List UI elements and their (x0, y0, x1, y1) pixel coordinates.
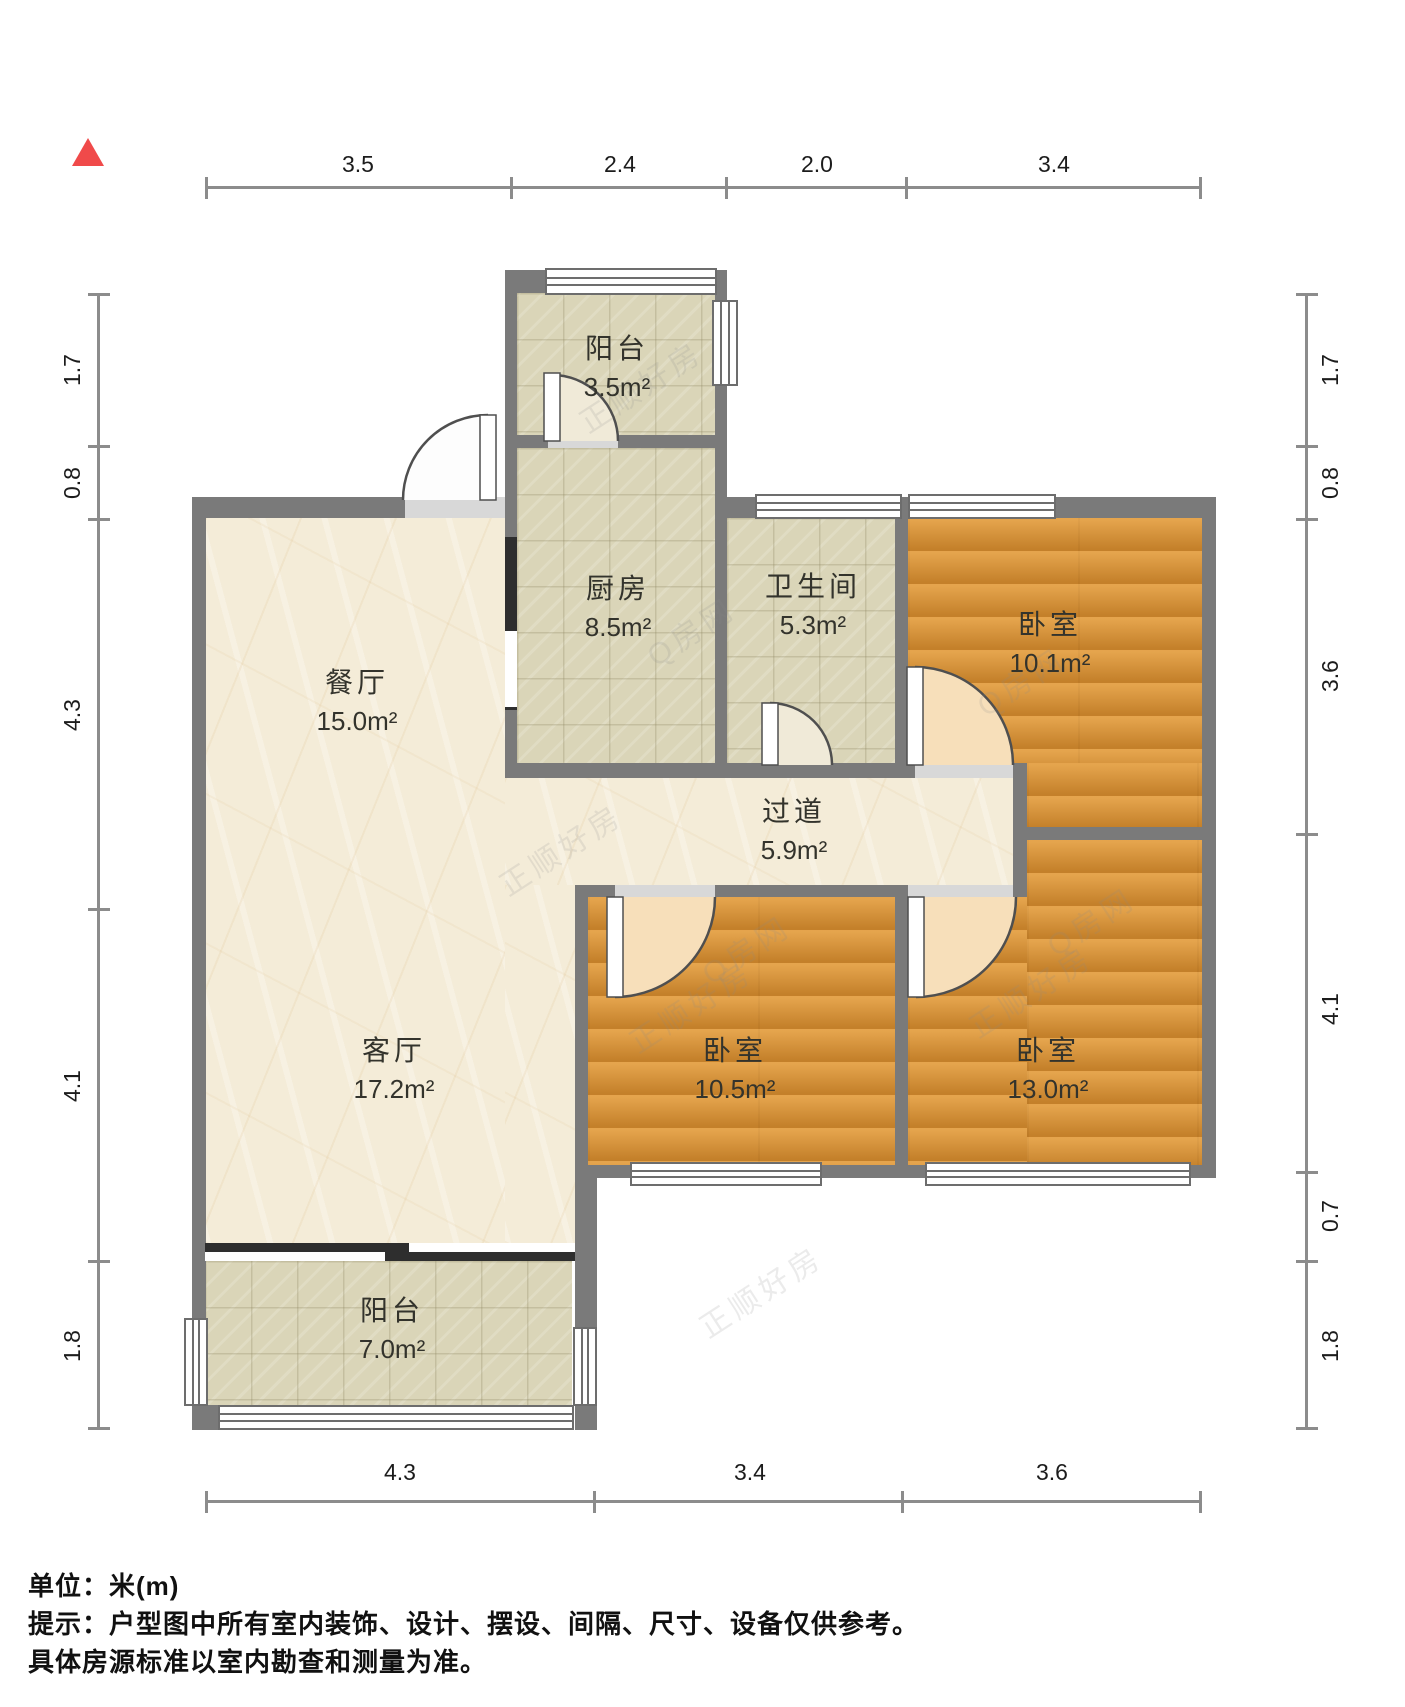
dim-label-right-1: 1.7 (1316, 335, 1344, 405)
watermark: 正顺好房 (689, 1233, 830, 1346)
room-name: 卧室 (703, 1029, 767, 1069)
sliding-door-track-right (409, 1243, 575, 1252)
dim-tick (1296, 1171, 1318, 1174)
window-bedroom-middle-bottom (630, 1162, 822, 1186)
threshold-bedroom-right-door (908, 885, 1013, 897)
dim-tick (88, 293, 110, 296)
dim-line-top (205, 186, 1202, 189)
dim-tick (88, 518, 110, 521)
room-area: 17.2m² (354, 1074, 435, 1105)
room-area: 5.9m² (761, 835, 827, 866)
sliding-door-panel-right (409, 1252, 575, 1261)
dim-tick (1296, 1260, 1318, 1263)
wall-bathroom-bedroom-divider (895, 518, 908, 763)
room-label-balcony-top: 阳台 3.5m² (584, 327, 650, 403)
dim-tick (510, 177, 513, 199)
dim-label-right-3: 3.6 (1316, 641, 1344, 711)
window-bedroom-top-right (908, 494, 1056, 519)
window-bathroom-top (755, 494, 902, 519)
dim-label-top-3: 2.0 (782, 150, 852, 178)
room-label-bedroom-top-right: 卧室 10.1m² (1010, 603, 1091, 679)
entrance-door-swing (403, 415, 488, 500)
threshold-bedroom-middle-door (615, 885, 715, 897)
wall-kitchen-left-upper (505, 448, 517, 537)
dim-tick (1199, 177, 1202, 199)
room-name: 卧室 (1018, 603, 1082, 643)
sliding-door-track-left (205, 1252, 385, 1261)
window-balcony-top-right (712, 300, 738, 386)
footer-unit-note: 单位：米(m) (28, 1566, 179, 1603)
dim-line-left (97, 293, 100, 1430)
dim-tick (88, 908, 110, 911)
room-area: 10.5m² (695, 1074, 776, 1105)
wall-balcony-kitchen-divider-left (505, 435, 548, 448)
threshold-entrance (405, 497, 505, 518)
wall-kitchen-left-lower (505, 710, 517, 763)
north-indicator-icon (72, 138, 104, 166)
wall-bedrooms-right-divider (1013, 827, 1216, 840)
wall-kitchen-dining-black-panel (505, 537, 517, 628)
floor-living-right-strip (505, 885, 575, 1243)
room-area: 3.5m² (584, 372, 650, 403)
wall-outer-left (192, 497, 206, 1430)
dim-label-top-1: 3.5 (323, 150, 393, 178)
room-label-kitchen: 厨房 8.5m² (585, 567, 651, 643)
room-label-balcony-bottom: 阳台 7.0m² (359, 1289, 425, 1365)
window-balcony-bottom-right (573, 1327, 597, 1406)
floor-bedroom-top-right-notch (1027, 763, 1202, 827)
dim-tick (901, 1491, 904, 1513)
sliding-door-panel-left (205, 1243, 385, 1252)
dim-label-bottom-1: 4.3 (365, 1458, 435, 1486)
footer-extra-note: 具体房源标准以室内勘查和测量为准。 (28, 1642, 487, 1679)
dim-label-right-5: 0.7 (1316, 1181, 1344, 1251)
room-label-bedroom-bottom-right: 卧室 13.0m² (1008, 1029, 1089, 1105)
threshold-bedroom-top-right-door (915, 763, 1013, 778)
footer-tip-note: 提示：户型图中所有室内装饰、设计、摆设、间隔、尺寸、设备仅供参考。 (28, 1604, 919, 1641)
window-balcony-bottom (218, 1405, 574, 1430)
room-area: 5.3m² (780, 610, 846, 641)
wall-hallway-bottom-middle (715, 885, 908, 897)
dim-label-bottom-3: 3.6 (1017, 1458, 1087, 1486)
dim-label-left-5: 1.8 (58, 1311, 86, 1381)
dim-tick (905, 177, 908, 199)
dim-label-left-3: 4.3 (58, 680, 86, 750)
dim-tick (205, 177, 208, 199)
dim-tick (88, 1260, 110, 1263)
room-label-hallway: 过道 5.9m² (761, 790, 827, 866)
room-label-bathroom: 卫生间 5.3m² (765, 565, 861, 641)
wall-living-bedroom-divider (575, 885, 588, 1165)
dim-label-right-4: 4.1 (1316, 974, 1344, 1044)
entrance-door-arc (403, 415, 488, 500)
wall-hallway-top (505, 763, 915, 778)
wall-dining-top (192, 497, 405, 518)
wall-living-right-corner (575, 1165, 597, 1327)
room-area: 8.5m² (585, 612, 651, 643)
dim-line-bottom (205, 1500, 1202, 1503)
opening-kitchen-dining-passage (505, 628, 517, 710)
dim-tick (1199, 1491, 1202, 1513)
threshold-balcony-top-door (548, 435, 618, 448)
wall-bedrooms-bottom-divider (895, 897, 908, 1165)
room-name: 餐厅 (325, 661, 389, 701)
window-balcony-top (545, 268, 717, 295)
room-name: 阳台 (585, 327, 649, 367)
wall-balcony-kitchen-divider-right (618, 435, 727, 448)
floor-plan-canvas: 阳台 3.5m² 厨房 8.5m² 卫生间 5.3m² 卧室 10.1m² 餐厅… (0, 0, 1405, 1707)
window-balcony-bottom-left (184, 1318, 208, 1406)
wall-balcony-bottom-left-corner (192, 1405, 218, 1430)
room-name: 过道 (762, 790, 826, 830)
dim-tick (88, 445, 110, 448)
room-area: 10.1m² (1010, 648, 1091, 679)
floor-dining-living (205, 518, 505, 1243)
dim-label-left-2: 0.8 (58, 448, 86, 518)
dim-tick (1296, 833, 1318, 836)
room-name: 厨房 (586, 567, 650, 607)
dim-label-left-1: 1.7 (58, 335, 86, 405)
dim-line-right (1305, 293, 1308, 1430)
dim-label-right-2: 0.8 (1316, 448, 1344, 518)
dim-tick (1296, 445, 1318, 448)
dim-tick (205, 1491, 208, 1513)
room-name: 卧室 (1016, 1029, 1080, 1069)
dim-tick (1296, 293, 1318, 296)
room-area: 15.0m² (317, 706, 398, 737)
window-bedroom-right-bottom (925, 1162, 1191, 1186)
room-label-bedroom-bottom-middle: 卧室 10.5m² (695, 1029, 776, 1105)
dim-label-top-2: 2.4 (585, 150, 655, 178)
sliding-door-overlap-block (385, 1243, 409, 1261)
room-name: 阳台 (360, 1289, 424, 1329)
wall-balcony-top-left (505, 270, 517, 448)
dim-label-left-4: 4.1 (58, 1051, 86, 1121)
room-area: 13.0m² (1008, 1074, 1089, 1105)
dim-label-bottom-2: 3.4 (715, 1458, 785, 1486)
wall-balcony-bottom-right-corner (575, 1405, 597, 1430)
room-name: 客厅 (362, 1029, 426, 1069)
dim-tick (88, 1427, 110, 1430)
dim-tick (725, 177, 728, 199)
dim-tick (1296, 1427, 1318, 1430)
room-name: 卫生间 (765, 565, 861, 605)
dim-tick (1296, 518, 1318, 521)
entrance-door-leaf (480, 415, 496, 500)
dim-label-right-6: 1.8 (1316, 1311, 1344, 1381)
room-label-living: 客厅 17.2m² (354, 1029, 435, 1105)
dim-label-top-4: 3.4 (1019, 150, 1089, 178)
room-label-dining: 餐厅 15.0m² (317, 661, 398, 737)
dim-tick (593, 1491, 596, 1513)
room-area: 7.0m² (359, 1334, 425, 1365)
